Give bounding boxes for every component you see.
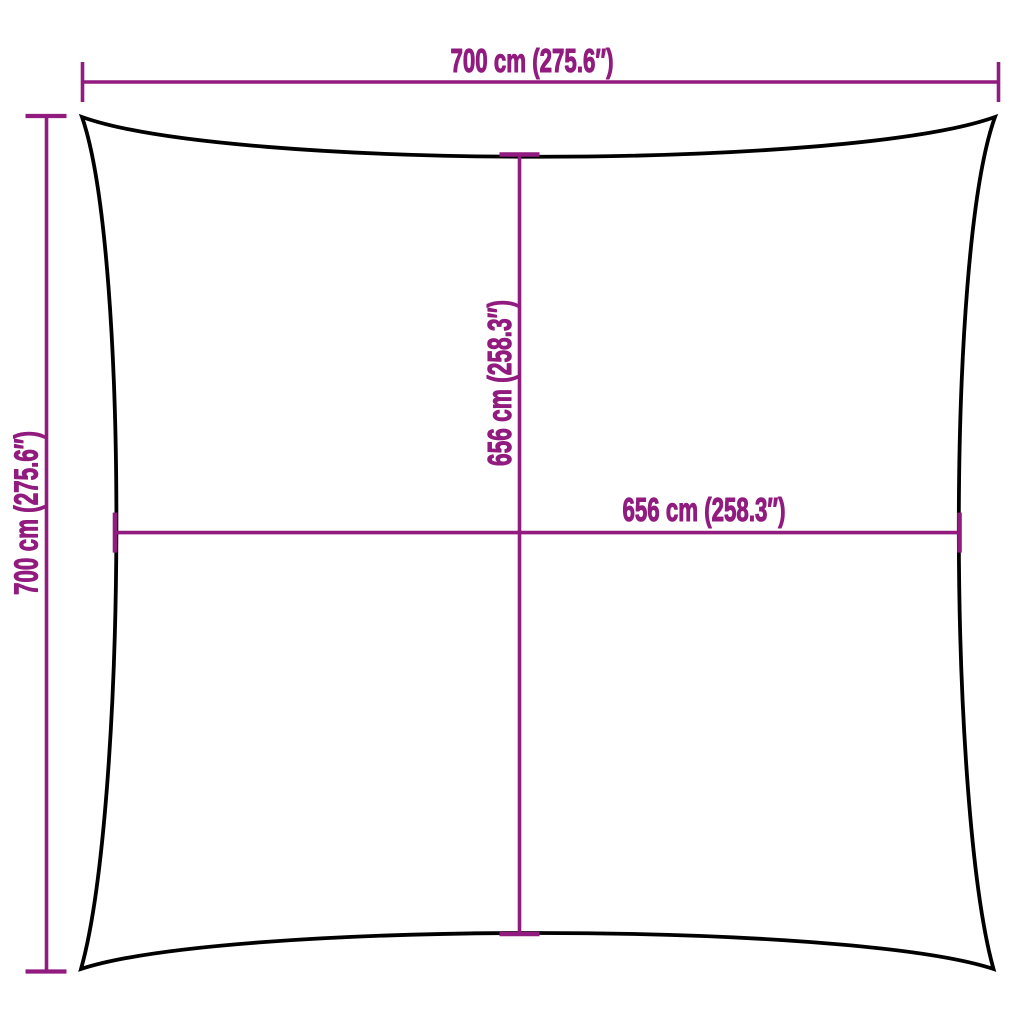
svg-text:700 cm (275.6″): 700 cm (275.6″) [8, 431, 45, 595]
svg-text:700 cm (275.6″): 700 cm (275.6″) [451, 42, 614, 79]
svg-text:656 cm (258.3″): 656 cm (258.3″) [623, 491, 786, 528]
svg-text:656 cm (258.3″): 656 cm (258.3″) [481, 300, 518, 466]
